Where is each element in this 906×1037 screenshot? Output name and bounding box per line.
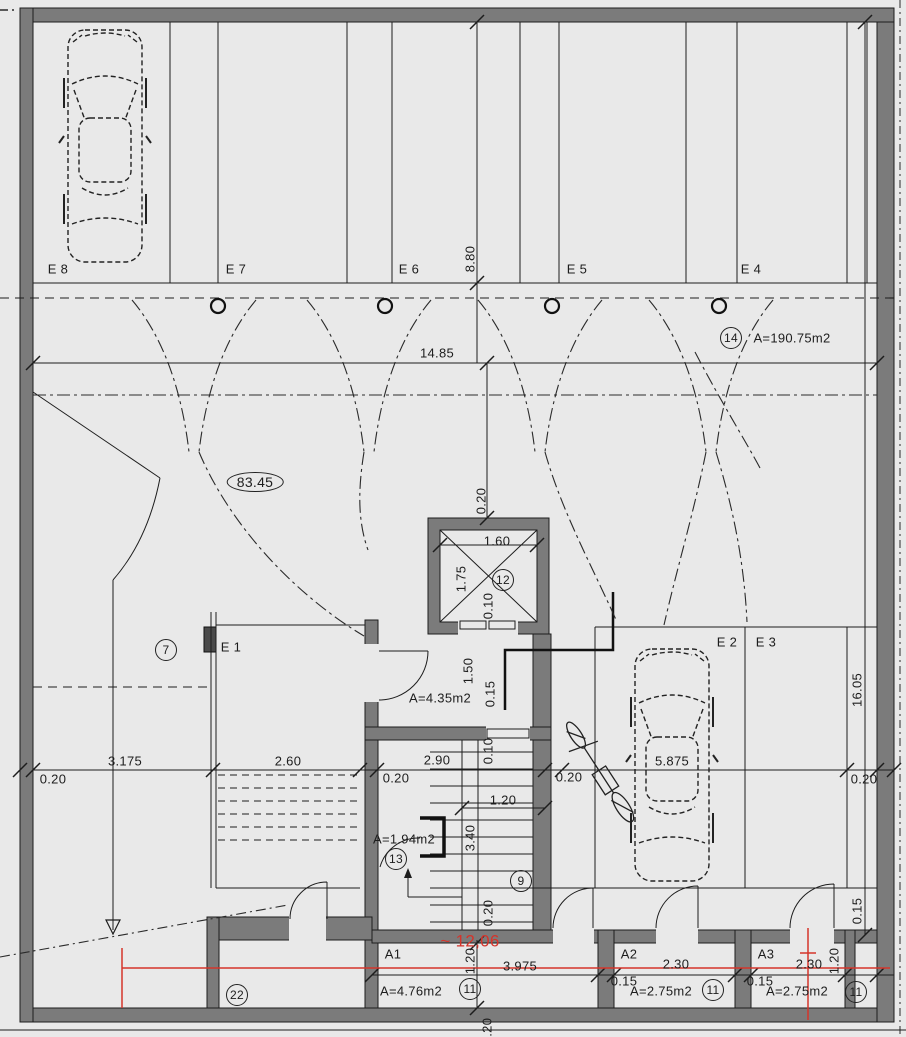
spot-label-e7: E 7 — [226, 263, 246, 276]
column-icon — [378, 299, 392, 313]
room-label-a2: A2 — [621, 948, 638, 961]
spot-label-e2: E 2 — [717, 636, 737, 649]
room-label-a1: A1 — [385, 948, 402, 961]
core-right-wall — [533, 634, 551, 940]
dim-14-85: 14.85 — [420, 347, 454, 360]
red-annotation-12-06: ~ 12,06 — [440, 933, 499, 950]
car-icon — [59, 30, 151, 262]
stair-direction-arrow — [404, 868, 412, 878]
a1-door-arc — [553, 888, 593, 928]
dim-2-60: 2.60 — [275, 755, 302, 768]
dim-0-20-right: 0.20 — [851, 773, 878, 786]
area-garage: A=190.75m2 — [753, 332, 830, 345]
upper-stair-treads — [218, 775, 360, 840]
dim-0-10-stair: 0.10 — [482, 738, 495, 765]
tag-circle-11-a1: 11 — [459, 978, 481, 1000]
dim-1-50: 1.50 — [462, 658, 475, 685]
floor-plan: E 8E 7E 6E 5E 4E 1E 2E 314.858.800.201.6… — [0, 0, 906, 1037]
spot-label-e5: E 5 — [567, 263, 587, 276]
room-label-a3: A3 — [758, 948, 775, 961]
dim-3-975: 3.975 — [503, 960, 537, 973]
column-icon — [211, 299, 225, 313]
dim-0-15-lobby: 0.15 — [484, 681, 497, 708]
tag-circle-14: 14 — [720, 327, 742, 349]
ramp-level-83-45: 83.45 — [227, 472, 284, 492]
floor-lines — [33, 22, 877, 1008]
dim-16-05: 16.05 — [851, 673, 864, 707]
area-a2: A=2.75m2 — [630, 985, 692, 998]
spot-label-e3: E 3 — [756, 636, 776, 649]
dim-0-20-elevtop: 0.20 — [475, 488, 488, 515]
tag-circle-11-a3: 11 — [845, 981, 867, 1003]
area-closet: A=1.94m2 — [373, 833, 435, 846]
tag-circle-7: 7 — [155, 639, 177, 661]
tag-circle-13: 13 — [385, 848, 407, 870]
area-lobby: A=4.35m2 — [409, 692, 471, 705]
dim-1-75: 1.75 — [455, 566, 468, 593]
dim-1-20-a1: 1.20 — [464, 948, 477, 975]
outer-walls — [20, 8, 894, 1022]
dim-2-90: 2.90 — [424, 754, 451, 767]
a3-door-arc — [790, 884, 834, 928]
dim-0-15-right: 0.15 — [851, 898, 864, 925]
column-icon — [712, 299, 726, 313]
a2-door-arc — [656, 886, 698, 928]
column-pier — [204, 627, 216, 652]
tag-circle-11-a2: 11 — [702, 979, 724, 1001]
column-icon — [545, 299, 559, 313]
dim-2-30-a2: 2.30 — [663, 958, 690, 971]
dim-3-175: 3.175 — [108, 755, 142, 768]
dim-0-20-stair-bottom: 0.20 — [482, 900, 495, 927]
area-a1: A=4.76m2 — [380, 985, 442, 998]
dim-0-20-core-left: 0.20 — [383, 772, 410, 785]
dim-3-40: 3.40 — [464, 825, 477, 852]
tag-circle-12: 12 — [492, 569, 514, 591]
dim-0-10-elev: 0.10 — [482, 593, 495, 620]
area-a3: A=2.75m2 — [766, 985, 828, 998]
dim-8-80: 8.80 — [464, 246, 477, 273]
shaft-duct-line — [505, 592, 613, 710]
dim-1-20-a3: 1.20 — [828, 948, 841, 975]
tag-circle-22: 22 — [226, 984, 248, 1006]
dim-0-20-left: 0.20 — [40, 773, 67, 786]
dimension-ticks — [13, 15, 901, 1015]
dim-0-20-bottom: 0.20 — [481, 1018, 494, 1037]
spot-label-e6: E 6 — [399, 263, 419, 276]
tag-circle-9: 9 — [510, 870, 532, 892]
spot-label-e8: E 8 — [48, 263, 68, 276]
dim-5-875: 5.875 — [655, 755, 689, 768]
spot-label-e4: E 4 — [741, 263, 761, 276]
dim-1-20-stair: 1.20 — [490, 794, 517, 807]
floor-plan-canvas — [0, 0, 906, 1037]
dim-2-30-a3: 2.30 — [796, 958, 823, 971]
column-circles — [211, 299, 726, 313]
spot-label-e1: E 1 — [221, 641, 241, 654]
dim-1-60: 1.60 — [484, 535, 511, 548]
dimension-lines — [33, 22, 894, 1008]
dim-0-20-core-right: 0.20 — [556, 771, 583, 784]
